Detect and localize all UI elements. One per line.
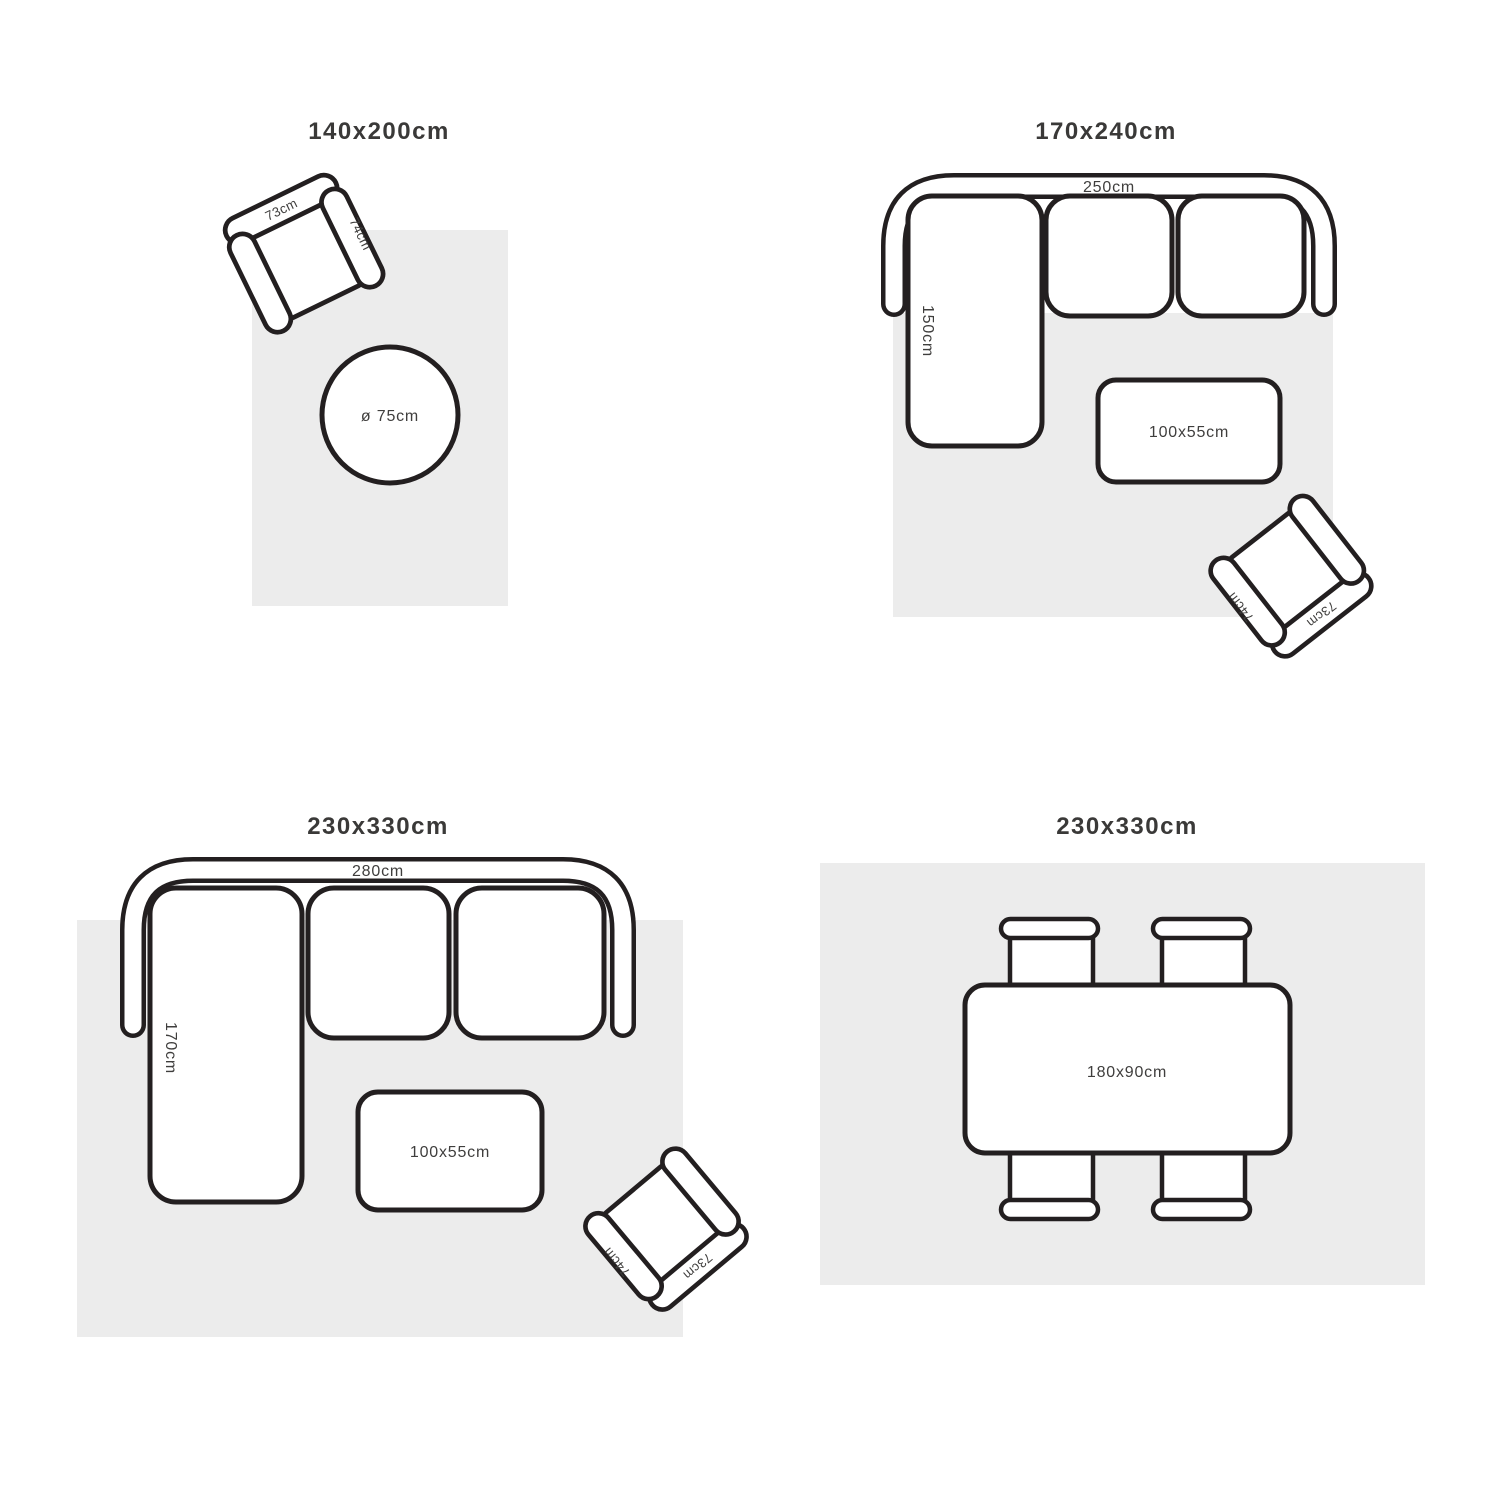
- rug-size-title: 230x330cm: [307, 813, 449, 840]
- dining-chair-bottom-left: [1001, 1148, 1098, 1219]
- quadrant-230x330-dining: 230x330cm 180x90cm: [820, 813, 1425, 1285]
- dining-chair-top-right: [1153, 919, 1250, 990]
- coffee-table-label: 100x55cm: [410, 1144, 490, 1161]
- coffee-table: 100x55cm: [1098, 380, 1280, 482]
- chair-seat: [1010, 1148, 1093, 1202]
- round-table-label: ø 75cm: [361, 408, 419, 425]
- sofa-length-label: 250cm: [1083, 179, 1135, 196]
- chair-back: [1001, 919, 1098, 938]
- chair-back: [1153, 919, 1250, 938]
- sofa-seat-cushion: [456, 888, 604, 1038]
- chair-seat: [1162, 936, 1245, 990]
- sofa-chaise-label: 150cm: [919, 305, 936, 357]
- sofa-seat-cushion: [1046, 196, 1172, 316]
- sofa-length-label: 280cm: [352, 863, 404, 880]
- rug-size-guide-diagram: 140x200cm ø 75cm 73cm 74cm 170x240cm 25: [0, 0, 1500, 1500]
- dining-chair-top-left: [1001, 919, 1098, 990]
- dining-table-label: 180x90cm: [1087, 1064, 1167, 1081]
- rug-size-title: 170x240cm: [1035, 118, 1177, 145]
- sofa-chaise-label: 170cm: [162, 1022, 179, 1074]
- chair-seat: [1010, 936, 1093, 990]
- sofa-seat-cushion: [1178, 196, 1304, 316]
- quadrant-170x240: 170x240cm 250cm 150cm 100x55cm 73cm 74cm: [893, 118, 1379, 666]
- rug-size-title: 140x200cm: [308, 118, 450, 145]
- coffee-table: 100x55cm: [358, 1092, 542, 1210]
- chair-back: [1001, 1200, 1098, 1219]
- sofa-seat-cushion: [308, 888, 449, 1038]
- quadrant-230x330-sofa: 230x330cm 280cm 170cm 100x55cm 73cm 74cm: [77, 813, 755, 1337]
- coffee-table-label: 100x55cm: [1149, 424, 1229, 441]
- chair-back: [1153, 1200, 1250, 1219]
- quadrant-140x200: 140x200cm ø 75cm 73cm 74cm: [217, 118, 508, 606]
- chair-seat: [1162, 1148, 1245, 1202]
- round-table: ø 75cm: [322, 347, 458, 483]
- dining-table: 180x90cm: [965, 985, 1290, 1153]
- rug-size-title: 230x330cm: [1056, 813, 1198, 840]
- dining-chair-bottom-right: [1153, 1148, 1250, 1219]
